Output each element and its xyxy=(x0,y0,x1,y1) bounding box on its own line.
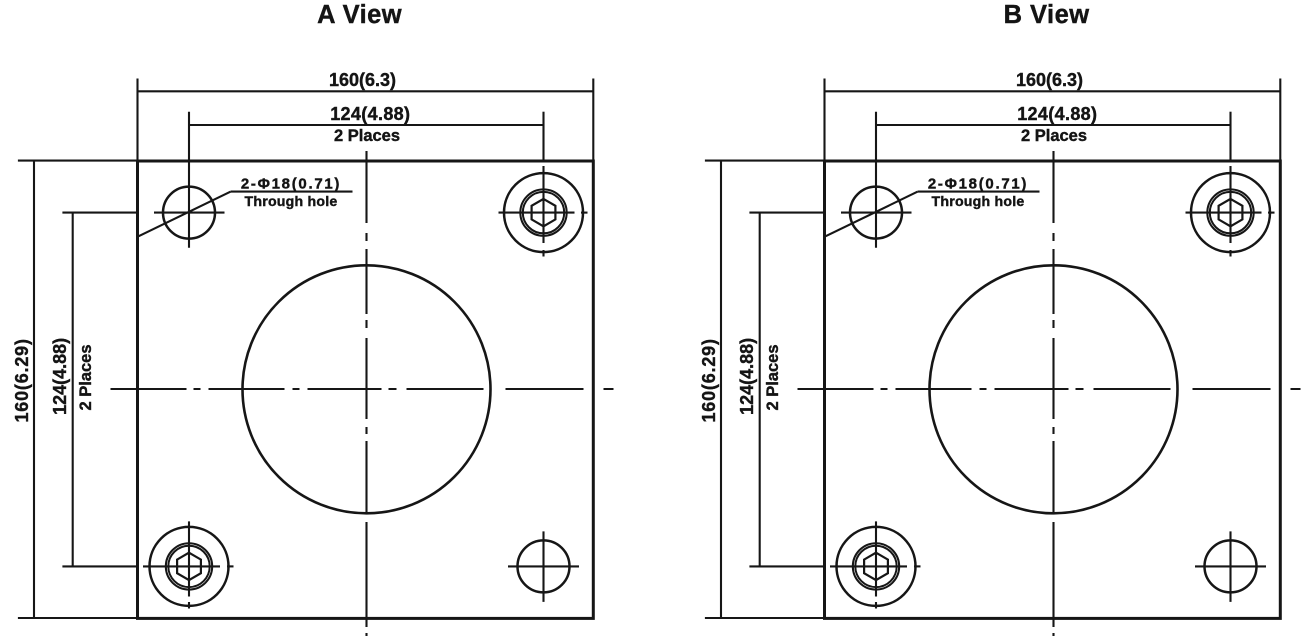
svg-text:124(4.88): 124(4.88) xyxy=(330,104,410,124)
svg-text:2-Φ18(0.71): 2-Φ18(0.71) xyxy=(241,176,341,193)
svg-text:2 Places: 2 Places xyxy=(334,127,400,145)
svg-text:160(6.29): 160(6.29) xyxy=(12,338,32,422)
svg-text:Through hole: Through hole xyxy=(244,194,337,210)
svg-text:2 Places: 2 Places xyxy=(77,344,95,410)
svg-text:B View: B View xyxy=(1004,1,1090,29)
svg-text:160(6.3): 160(6.3) xyxy=(329,70,396,90)
svg-text:124(4.88): 124(4.88) xyxy=(50,338,70,415)
svg-text:A View: A View xyxy=(317,1,402,29)
